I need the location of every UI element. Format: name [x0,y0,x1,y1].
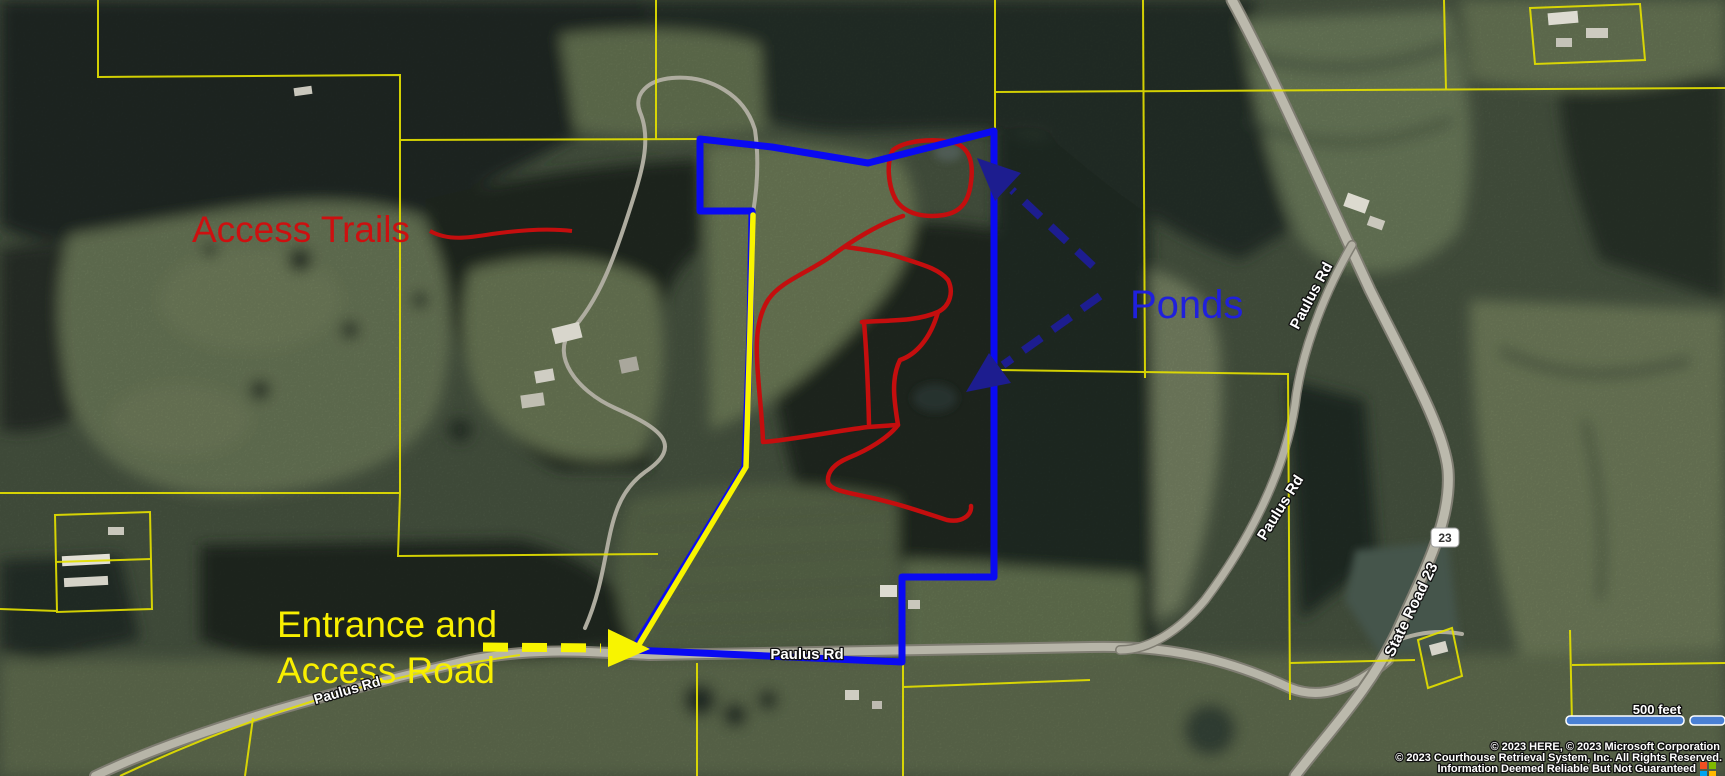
entrance-label-line1: Entrance and [277,604,497,645]
satellite-map: Access Trails Ponds Entrance and Access … [0,0,1725,776]
attribution-line-3: Information Deemed Reliable But Not Guar… [1437,763,1696,775]
route-23-shield: 23 [1431,528,1459,547]
access-trails-label: Access Trails [192,209,410,250]
scale-bar-label: 500 feet [1633,702,1682,717]
entrance-label-line2: Access Road [277,650,495,691]
route-23-shield-text: 23 [1438,531,1452,545]
paulus-rd-label-bottom: Paulus Rd [770,646,843,663]
ponds-label: Ponds [1130,283,1243,327]
map-canvas[interactable]: Access Trails Ponds Entrance and Access … [0,0,1725,776]
